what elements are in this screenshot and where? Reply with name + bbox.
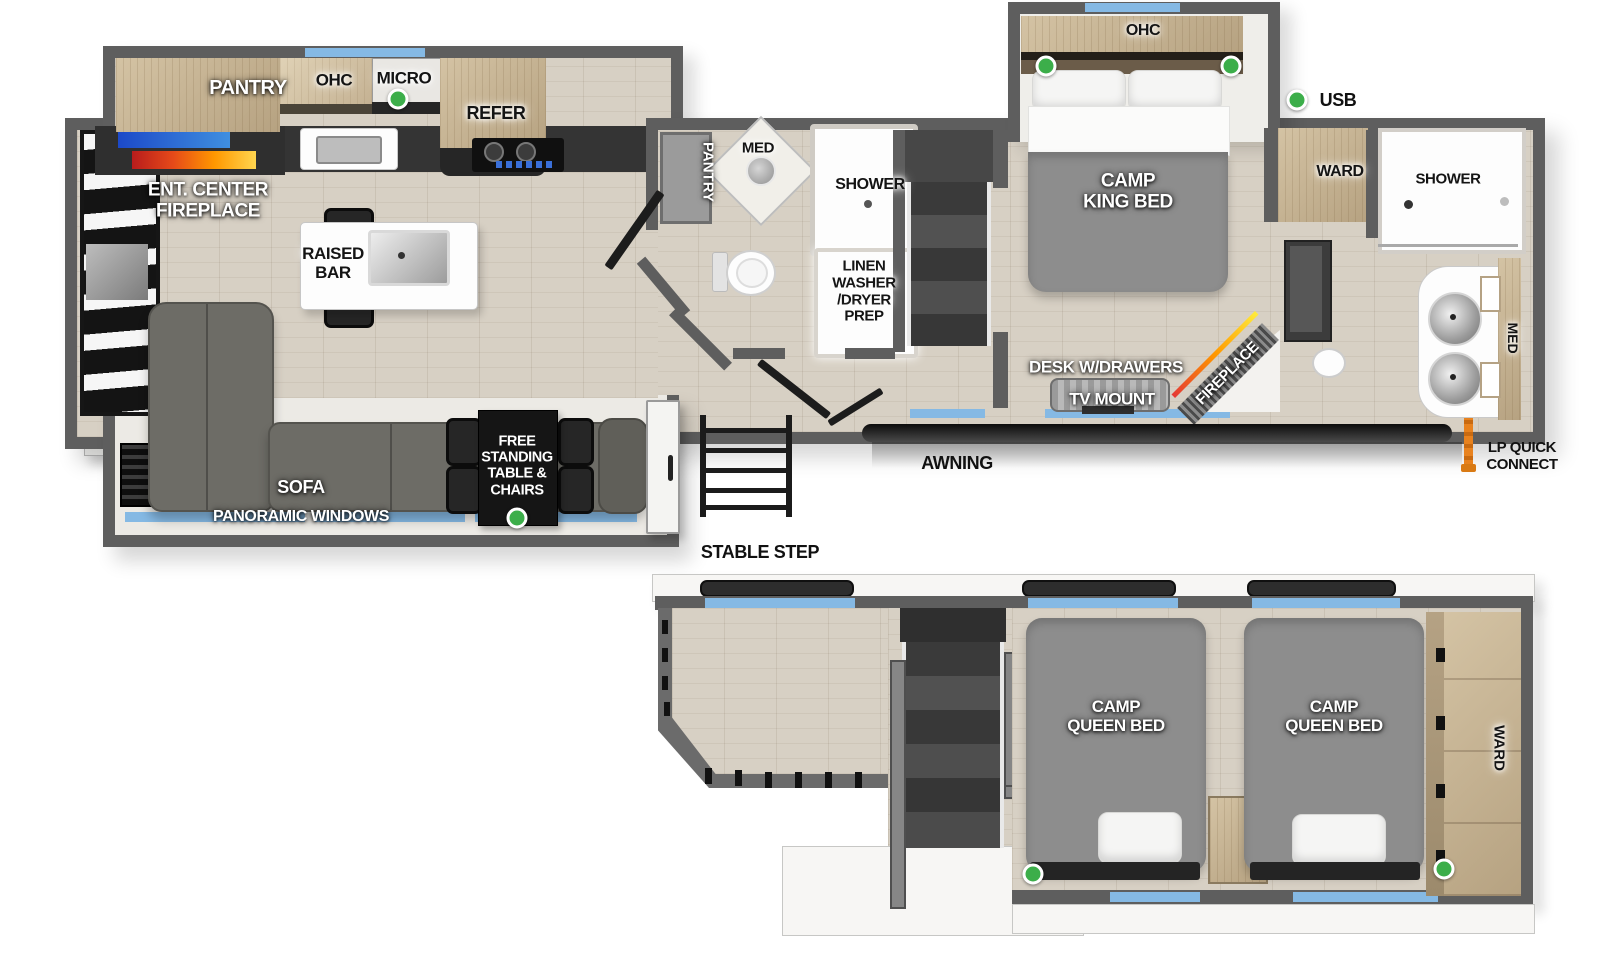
usb-indicator-dot (1221, 56, 1242, 77)
stable-step-label: STABLE STEP (701, 542, 819, 562)
bath-pantry-label: PANTRY (699, 142, 716, 202)
roof-vent (1022, 580, 1176, 597)
tv-mount-label: TV MOUNT (1069, 389, 1155, 408)
lower-window (1028, 598, 1178, 608)
camp-king-bed-label: CAMP KING BED (1083, 171, 1173, 214)
stair-step (902, 778, 1004, 812)
free-standing-table-label: FREE STANDING TABLE & CHAIRS (481, 434, 552, 499)
railing-post (705, 768, 712, 784)
lower-window (705, 598, 855, 608)
railing-post (735, 770, 742, 786)
bed-base (1250, 862, 1420, 880)
drawer-handle (1436, 716, 1445, 730)
stair-step (902, 642, 1004, 676)
railing-post (662, 620, 668, 634)
stair-step (902, 710, 1004, 744)
railing-post (664, 702, 670, 716)
railing-post (662, 676, 668, 690)
usb-indicator-dot (388, 89, 409, 110)
micro-label: MICRO (377, 68, 432, 87)
stair-railing (890, 660, 906, 909)
lower-window (1110, 892, 1200, 902)
camp-queen-bed-2-label: CAMP QUEEN BED (1285, 697, 1382, 735)
awning-label: AWNING (921, 453, 993, 473)
stair-step (902, 744, 1004, 778)
roof-vent (1247, 580, 1396, 597)
sofa-label: SOFA (277, 477, 324, 497)
linen-prep-label: LINEN WASHER /DRYER PREP (832, 258, 895, 325)
pillow (1098, 812, 1182, 864)
lower-ward-label: WARD (1490, 725, 1507, 771)
railing-post (825, 772, 832, 788)
pillow (1292, 814, 1386, 866)
lower-ward-cabinet (1444, 612, 1521, 896)
raised-bar-label: RAISED BAR (302, 244, 364, 282)
railing-post (795, 772, 802, 788)
railing-post (765, 772, 772, 788)
ohc-label: OHC (316, 70, 353, 89)
lower-window (1293, 892, 1438, 902)
bedroom-ohc-label: OHC (1126, 22, 1160, 40)
lower-right-wall (1521, 596, 1533, 906)
refer-label: REFER (466, 103, 525, 123)
railing-post (662, 648, 668, 662)
drawer-handle (1436, 784, 1445, 798)
stair-landing (900, 608, 1006, 642)
lower-floorplan: CAMP QUEEN BED CAMP QUEEN BED WARD (0, 0, 1600, 961)
lp-quick-connect-label: LP QUICK CONNECT (1486, 440, 1557, 474)
rear-shower-label: SHOWER (1415, 172, 1480, 189)
bedroom-ward-label: WARD (1316, 163, 1363, 181)
usb-indicator-dot (1023, 864, 1044, 885)
usb-indicator-dot (1434, 859, 1455, 880)
railing-post (855, 772, 862, 788)
bath-med-label: MED (742, 141, 774, 158)
bed-base (1030, 862, 1200, 880)
panoramic-windows-label: PANORAMIC WINDOWS (213, 508, 389, 526)
stair-step (902, 676, 1004, 710)
rear-med-label: MED (1504, 322, 1520, 353)
lower-window (1252, 598, 1400, 608)
roof-vent (700, 580, 854, 597)
drawer-handle (1436, 648, 1445, 662)
stair-step (902, 812, 1004, 848)
loft-floor (672, 608, 890, 774)
usb-legend-label: USB (1320, 90, 1357, 110)
usb-legend-dot (1287, 90, 1308, 111)
pantry-label: PANTRY (209, 77, 287, 99)
desk-label: DESK W/DRAWERS (1029, 357, 1183, 376)
usb-indicator-dot (1036, 56, 1057, 77)
lower-roof-bottom (1012, 904, 1535, 934)
rv-floorplan: PANTRY OHC MICRO REFER ENT. CENTER FIREP… (0, 0, 1600, 961)
bath-shower-label: SHOWER (835, 176, 905, 194)
usb-indicator-dot (507, 508, 528, 529)
camp-queen-bed-1-label: CAMP QUEEN BED (1067, 697, 1164, 735)
ent-center-fireplace-label: ENT. CENTER FIREPLACE (148, 180, 268, 223)
